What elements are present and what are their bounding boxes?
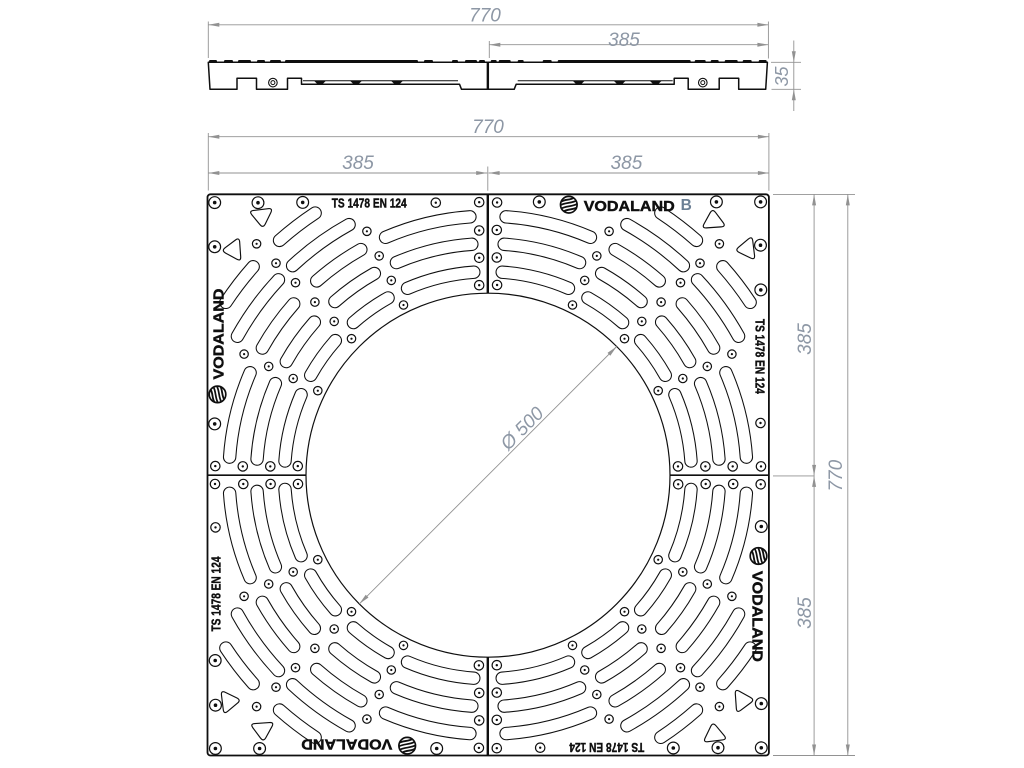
svg-text:770: 770: [826, 459, 847, 491]
svg-text:385: 385: [611, 153, 643, 174]
svg-text:B: B: [681, 197, 692, 214]
svg-text:385: 385: [608, 30, 640, 51]
svg-text:385: 385: [342, 153, 374, 174]
svg-text:770: 770: [472, 117, 504, 138]
svg-text:385: 385: [795, 323, 816, 355]
svg-text:385: 385: [795, 597, 816, 629]
svg-text:770: 770: [469, 5, 501, 26]
svg-text:35: 35: [772, 66, 792, 87]
